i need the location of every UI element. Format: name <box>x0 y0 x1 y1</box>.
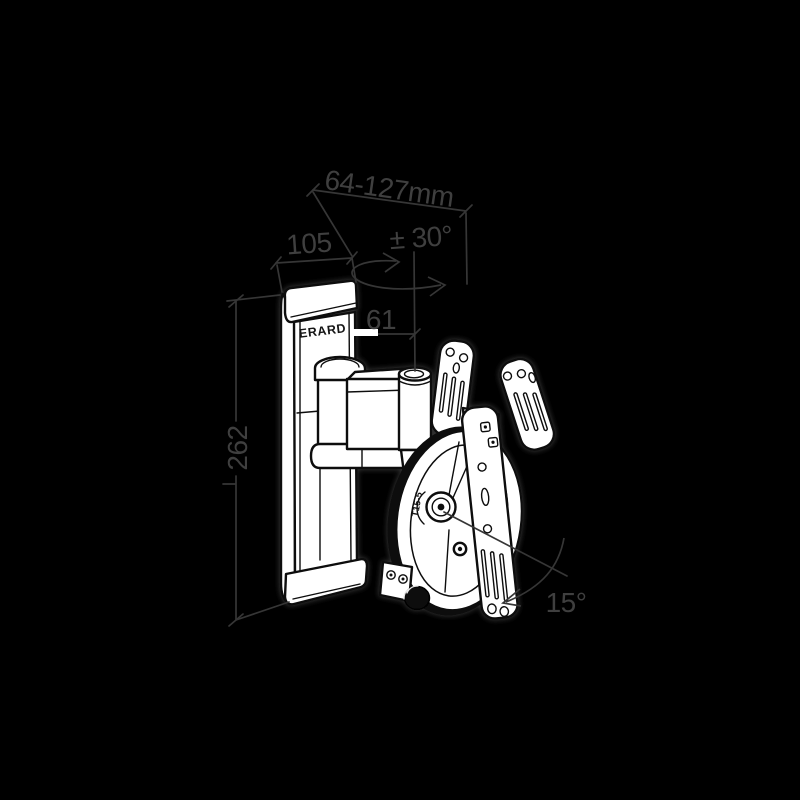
vesa-upper-arm-right <box>497 355 558 453</box>
hinge-column <box>318 372 350 452</box>
width-range-label: 64-127mm <box>323 164 456 213</box>
plate-width-label: 105 <box>285 226 332 260</box>
arm-offset-label: 61 <box>366 304 396 335</box>
swivel-range-label: ± 30° <box>388 220 453 255</box>
plate-height-label: 262 <box>222 425 253 470</box>
dimension-arm-offset: 61 <box>352 304 420 339</box>
tilt-range-label: 15° <box>546 587 587 618</box>
dimension-plate-height: 262 <box>222 295 289 626</box>
wall-mount-technical-drawing: ERARD <box>0 0 800 800</box>
diagram-canvas: ERARD <box>0 0 800 800</box>
mount-artwork: ERARD <box>281 281 558 625</box>
dimension-swivel-range: ± 30° <box>352 220 453 371</box>
disc-lock-screw <box>454 543 466 555</box>
swivel-arrowhead-upper <box>383 253 399 272</box>
swivel-arrow <box>352 261 441 289</box>
tilt-pivot-bolt: T15-5 <box>410 491 456 522</box>
